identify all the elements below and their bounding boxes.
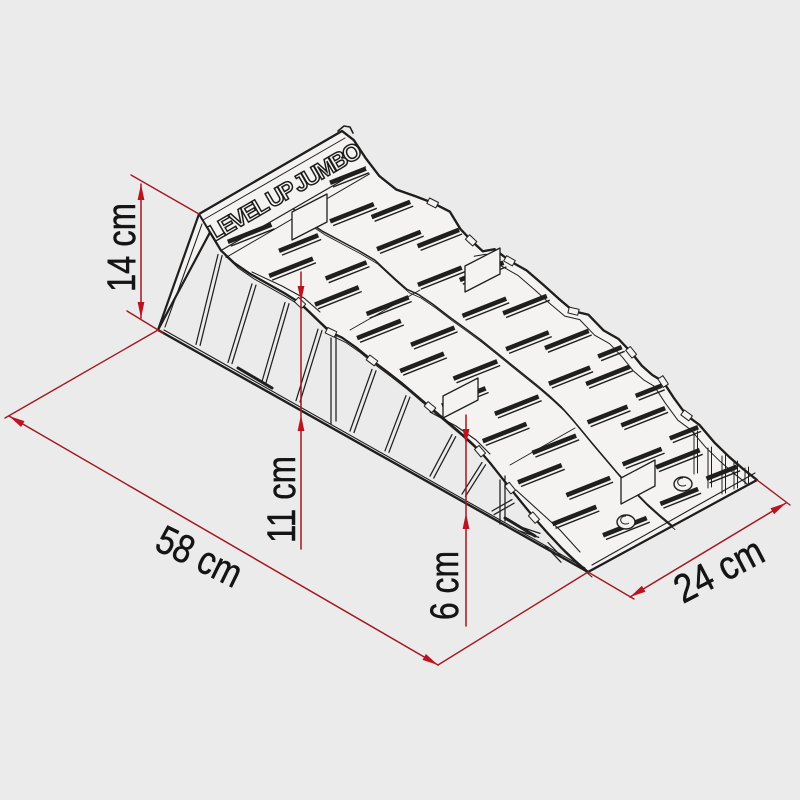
- svg-text:14 cm: 14 cm: [100, 203, 144, 292]
- svg-text:6 cm: 6 cm: [423, 551, 467, 620]
- svg-text:11 cm: 11 cm: [260, 456, 304, 543]
